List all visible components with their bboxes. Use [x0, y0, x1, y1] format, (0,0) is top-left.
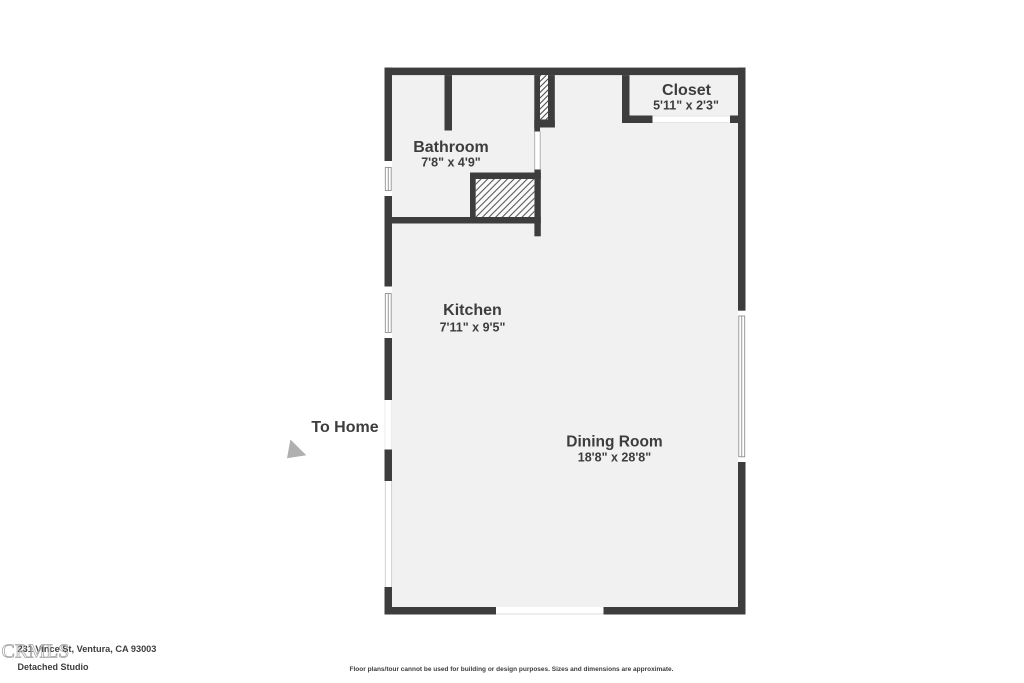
svg-text:5'11" x 2'3": 5'11" x 2'3"	[653, 99, 719, 113]
svg-text:CRMLS: CRMLS	[2, 640, 70, 662]
svg-text:7'8" x 4'9": 7'8" x 4'9"	[421, 156, 481, 170]
svg-text:18'8" x 28'8": 18'8" x 28'8"	[578, 451, 651, 465]
svg-text:Closet: Closet	[662, 82, 712, 99]
svg-text:Bathroom: Bathroom	[413, 139, 489, 156]
svg-text:Dining Room: Dining Room	[566, 434, 662, 451]
svg-text:Detached Studio: Detached Studio	[18, 662, 90, 672]
svg-text:Kitchen: Kitchen	[443, 302, 502, 319]
svg-text:7'11" x 9'5": 7'11" x 9'5"	[440, 321, 506, 335]
svg-text:To Home: To Home	[311, 419, 378, 436]
svg-text:Floor plans/tour cannot be use: Floor plans/tour cannot be used for buil…	[350, 666, 674, 673]
